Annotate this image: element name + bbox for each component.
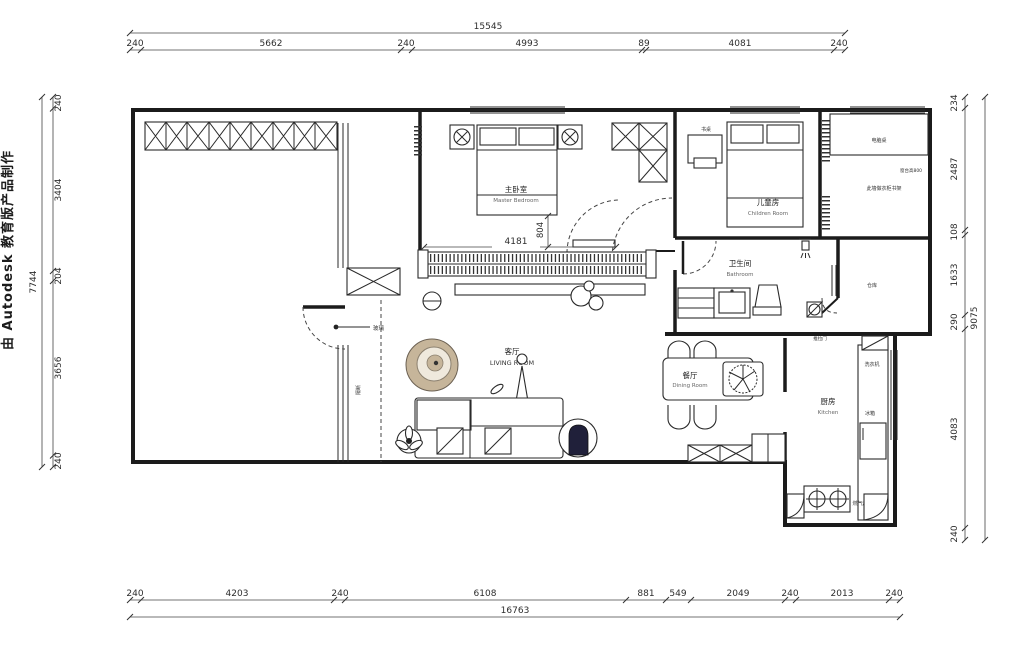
dim-right-2: 108 — [950, 223, 960, 240]
glass-leader: 玻璃 — [334, 324, 385, 332]
dim-bot-8: 2013 — [831, 589, 854, 599]
dim-bot-total: 16763 — [501, 606, 530, 616]
dim-top-5: 4081 — [729, 39, 752, 49]
room-label-living-en: LIVING ROOM — [490, 359, 534, 367]
dining-area: 餐厅 Dining Room — [663, 341, 763, 429]
dim-door: 804 — [536, 222, 546, 238]
dim-top-6: 240 — [830, 39, 847, 49]
window-study — [850, 107, 925, 113]
glass-label: 玻璃 — [373, 324, 385, 332]
partition-label: 隔断 — [355, 385, 362, 395]
dim-right-total: 9075 — [970, 307, 980, 330]
tv-console — [455, 284, 645, 295]
window-children — [730, 107, 800, 113]
room-label-bath-en: Bathroom — [726, 272, 753, 278]
dim-right-5: 4083 — [950, 418, 960, 441]
pillow — [519, 128, 554, 145]
fridge — [860, 423, 886, 459]
dim-bot-0: 240 — [126, 589, 143, 599]
dimension-right: 234 2487 108 1633 290 4083 240 9075 — [950, 94, 988, 543]
room-label-kitchen-zh: 厨房 — [821, 396, 836, 406]
dimension-left: 7744 240 3404 204 3656 240 — [29, 94, 64, 470]
dim-left-1: 3404 — [54, 178, 64, 201]
bathroom: 卫生间 Bathroom — [678, 239, 822, 318]
study-room: 电脑桌 此墙做衣柜书架 窗台高800 — [830, 114, 928, 192]
vanity-cabinet — [678, 288, 714, 318]
dim-right-1: 2487 — [950, 158, 960, 181]
wardrobe-sliding: 4181 804 — [418, 213, 656, 278]
dim-bot-2: 240 — [331, 589, 348, 599]
dim-right-0: 234 — [950, 94, 960, 111]
computer-desk-label: 电脑桌 — [871, 137, 886, 144]
dim-bot-6: 2049 — [727, 589, 750, 599]
dim-top-2: 240 — [397, 39, 414, 49]
room-label-dining-zh: 餐厅 — [683, 371, 698, 380]
dim-bot-9: 240 — [885, 589, 902, 599]
desk-chair — [694, 158, 716, 168]
room-label-storage: 仓库 — [867, 282, 877, 289]
dim-wardrobe: 4181 — [505, 237, 528, 247]
pillow — [480, 128, 516, 145]
dimension-top: 15545 240 5662 240 4993 89 4081 240 — [126, 22, 848, 53]
washing-machine-label: 洗衣机 — [864, 361, 879, 368]
dim-right-6: 240 — [950, 525, 960, 542]
sliding-door-note: 推拉门 — [813, 335, 827, 342]
dim-left-total: 7744 — [29, 270, 39, 293]
room-label-bath-zh: 卫生间 — [729, 258, 752, 268]
floor-drain — [807, 302, 822, 317]
dim-left-3: 3656 — [54, 356, 64, 379]
shower-icon — [799, 239, 811, 258]
computer-desk — [830, 114, 928, 155]
dim-left-4: 240 — [54, 452, 64, 469]
speaker — [559, 419, 597, 457]
window-note: 窗台高800 — [900, 167, 922, 174]
room-label-master-zh: 主卧室 — [505, 184, 528, 194]
dim-right-3: 1633 — [950, 264, 960, 287]
kitchen: 厨房 Kitchen 推拉门 洗衣机 冰箱 燃气灶 — [787, 335, 888, 520]
room-label-kitchen-en: Kitchen — [818, 410, 839, 416]
fridge-label: 冰箱 — [865, 410, 875, 417]
dim-left-0: 240 — [54, 94, 64, 111]
master-bedroom: 主卧室 Master Bedroom — [418, 125, 582, 215]
chair — [668, 405, 690, 429]
dim-top-0: 240 — [126, 39, 143, 49]
sideboard — [688, 434, 785, 462]
living-room: 客厅 LIVING ROOM — [334, 281, 645, 462]
cad-floorplan-canvas: 15545 240 5662 240 4993 89 4081 240 240 … — [0, 0, 1020, 658]
pillow — [767, 125, 799, 143]
dim-bot-4: 881 — [637, 589, 654, 599]
gas-stove — [804, 486, 850, 512]
dimension-bottom: 240 4203 240 6108 881 549 2049 240 2013 … — [126, 589, 903, 620]
toilet — [755, 285, 781, 307]
room-label-children-zh: 儿童房 — [757, 197, 780, 207]
door-arc-children — [612, 198, 672, 258]
papasan-chair — [406, 339, 458, 391]
door-arc-bathroom — [683, 241, 716, 274]
study-note: 此墙做衣柜书架 — [866, 185, 901, 192]
dim-right-4: 290 — [950, 313, 960, 330]
sofa — [415, 398, 563, 458]
room-label-dining-en: Dining Room — [672, 383, 707, 389]
closet-strip — [145, 122, 337, 150]
dim-bot-7: 240 — [781, 589, 798, 599]
window-master — [470, 107, 565, 113]
chair — [694, 405, 716, 429]
dim-top-1: 5662 — [260, 39, 283, 49]
door-leaf-master — [573, 240, 615, 247]
room-label-living-zh: 客厅 — [505, 346, 520, 356]
dim-bot-3: 6108 — [474, 589, 497, 599]
door-leaf-storage — [822, 298, 838, 313]
autodesk-watermark: 由 Autodesk 教育版产品制作 — [0, 150, 16, 350]
dim-top-3: 4993 — [516, 39, 539, 49]
desk-label: 书桌 — [701, 126, 711, 133]
room-label-master-en: Master Bedroom — [493, 198, 538, 204]
children-room: 书桌 儿童房 Children Room — [688, 120, 826, 232]
storage-room: 仓库 — [867, 282, 877, 289]
door-arc-entry — [303, 307, 345, 349]
pillow — [731, 125, 763, 143]
room-label-children-en: Children Room — [748, 211, 788, 217]
floorplan-drawing: 15545 240 5662 240 4993 89 4081 240 240 … — [0, 0, 1020, 658]
dim-bot-1: 4203 — [226, 589, 249, 599]
dim-top-total: 15545 — [474, 22, 503, 32]
elevation-symbol — [423, 292, 441, 310]
dim-top-4: 89 — [638, 39, 650, 49]
dim-left-2: 204 — [54, 267, 64, 284]
dim-bot-5: 549 — [669, 589, 686, 599]
hall-wardrobe — [612, 123, 667, 182]
